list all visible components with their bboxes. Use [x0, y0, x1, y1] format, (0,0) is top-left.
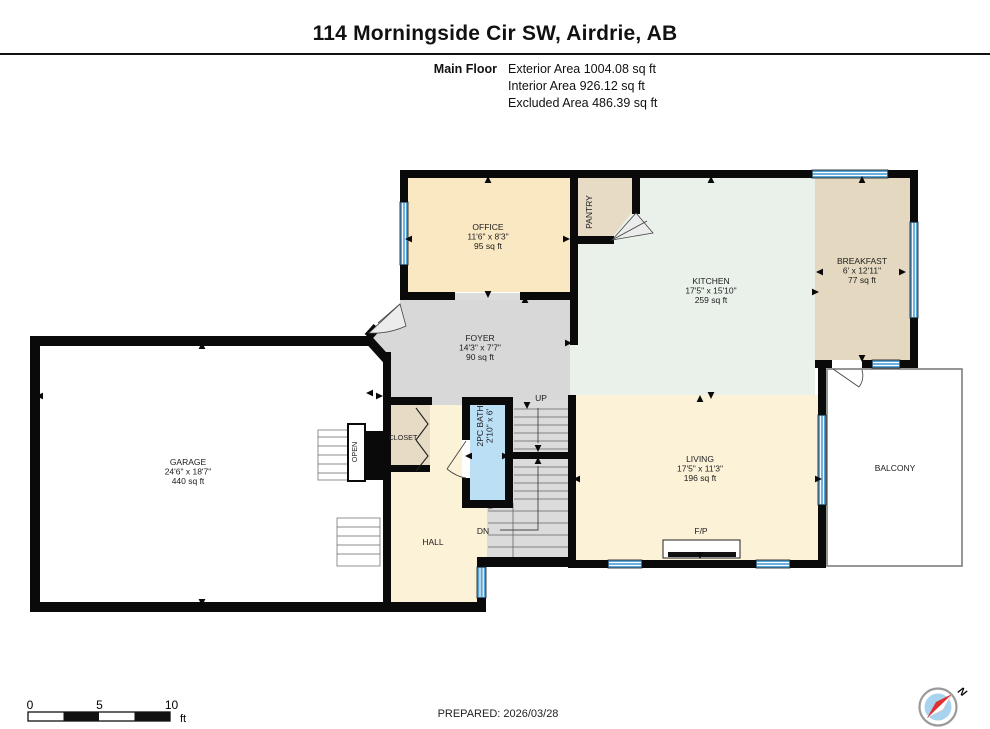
foyer-label: FOYER: [465, 333, 494, 343]
breakfast-label: BREAKFAST: [837, 256, 887, 266]
scale-unit: ft: [180, 713, 186, 725]
floor-plan-page: 114 Morningside Cir SW, Airdrie, AB Main…: [0, 0, 990, 729]
kitchen-area: 259 sq ft: [695, 295, 728, 305]
office-dims: 11'6" x 8'3": [467, 232, 508, 242]
compass-north-label: N: [955, 685, 969, 699]
hall-opening: [432, 398, 462, 405]
living-bottom-window-left: [608, 560, 642, 568]
living-right-window: [818, 415, 826, 505]
fireplace-label: F/P: [694, 526, 708, 536]
floor-plan-drawing: OFFICE 11'6" x 8'3" 95 sq ft PANTRY KITC…: [0, 0, 990, 729]
balcony-label: BALCONY: [875, 463, 916, 473]
bath-label: 2PC BATH: [475, 406, 485, 447]
scale-bar: 0 5 10 ft: [27, 698, 186, 725]
open-label: OPEN: [350, 442, 359, 462]
breakfast-bottom-window: [872, 360, 900, 368]
office-area: 95 sq ft: [474, 241, 503, 251]
prepared-date: PREPARED: 2026/03/28: [438, 708, 559, 720]
closet-label: CLOSET: [389, 433, 418, 442]
hall-label: HALL: [422, 537, 444, 547]
kitchen-dims: 17'5" x 15'10": [685, 286, 736, 296]
living-area: 196 sq ft: [684, 473, 717, 483]
foyer-dims: 14'3" x 7'7": [459, 343, 501, 353]
office-label: OFFICE: [472, 222, 503, 232]
hall-window: [477, 567, 486, 598]
living-dims: 17'5" x 11'3": [677, 464, 723, 474]
garage-label: GARAGE: [170, 457, 207, 467]
living-bottom-window-right: [756, 560, 790, 568]
compass-icon: N: [920, 685, 970, 726]
bath-dims: 2'10" x 6': [485, 409, 495, 444]
kitchen-passage: [570, 345, 578, 397]
scale-tick-0: 0: [27, 698, 34, 712]
pantry-label: PANTRY: [584, 195, 594, 229]
breakfast-area: 77 sq ft: [848, 275, 877, 285]
entry-door-swing: [369, 304, 406, 333]
breakfast-dims: 6' x 12'11": [843, 266, 881, 276]
garage-area: 440 sq ft: [172, 476, 205, 486]
stairs-dn-label: DN: [477, 526, 489, 536]
living-label: LIVING: [686, 454, 714, 464]
scale-tick-5: 5: [96, 698, 103, 712]
kitchen-top-window: [812, 170, 888, 178]
kitchen-label: KITCHEN: [692, 276, 729, 286]
breakfast-right-window: [910, 222, 918, 318]
stairs-up-label: UP: [535, 393, 547, 403]
garage-dims: 24'6" x 18'7": [165, 467, 212, 477]
scale-tick-10: 10: [165, 698, 179, 712]
foyer-area: 90 sq ft: [466, 352, 495, 362]
office-window: [400, 202, 408, 265]
